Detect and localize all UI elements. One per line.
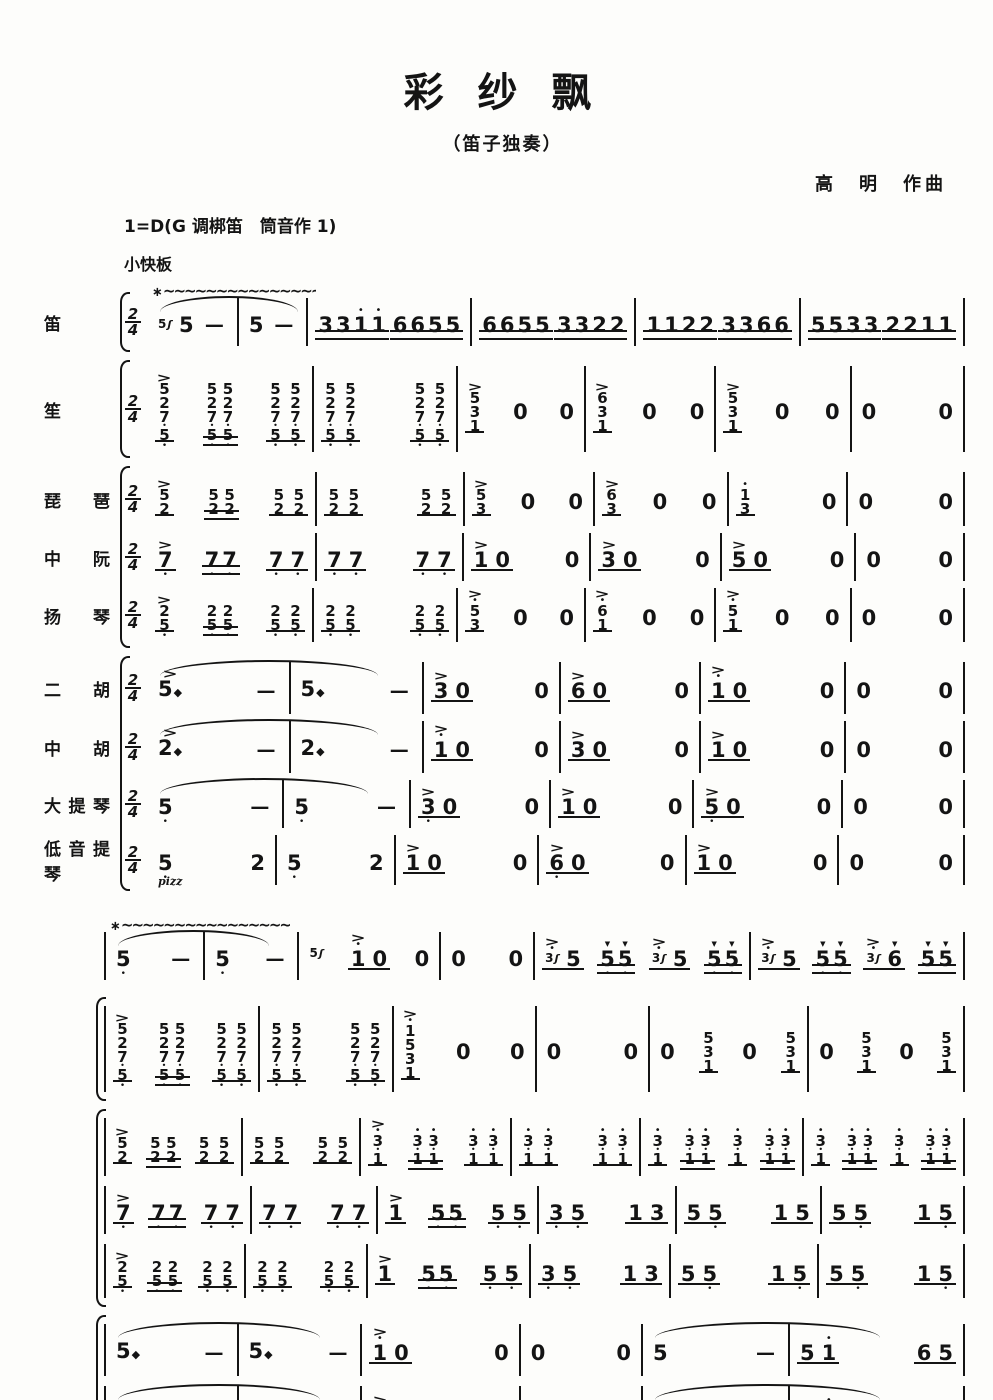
beat-group: >531 xyxy=(466,375,483,443)
note: •3•1 xyxy=(411,1118,424,1176)
beat-group: 0 xyxy=(532,664,551,712)
measure-strip: >527•5•527•5•527•5•527•5•527•5•527•5•527… xyxy=(104,1006,965,1092)
beat-group: 0 xyxy=(818,723,837,771)
note: >1 xyxy=(378,1247,393,1295)
octave-dot-below: • xyxy=(797,1285,802,1295)
beat-group: >7• xyxy=(156,533,175,581)
measure: 00 xyxy=(537,1006,650,1092)
beat-group: 25•25• xyxy=(321,1244,358,1298)
note: 0 xyxy=(531,1326,546,1374)
beat-group: 25•25• xyxy=(267,588,304,642)
measure: 00 xyxy=(856,533,965,581)
octave-dot-below: • xyxy=(225,1288,230,1298)
instrument-row: 大提琴245•—5•—>3•00>100>5•0000 xyxy=(40,780,965,828)
note: 5 xyxy=(653,1326,668,1374)
note: 527•5• xyxy=(349,1006,362,1092)
note: 25• xyxy=(201,1244,214,1298)
octave-dot-below: • xyxy=(546,1285,551,1295)
beat-group: 0 xyxy=(936,723,955,771)
note: 2 xyxy=(610,298,625,346)
octave-dot-below: • xyxy=(426,1285,431,1295)
note: 0 xyxy=(674,723,689,771)
note: •1 xyxy=(822,1326,837,1374)
measure: •130 xyxy=(729,472,849,526)
measure: 527•5•527•5•527•5•527•5• xyxy=(260,1006,394,1092)
octave-dot-below: • xyxy=(729,970,734,980)
dash-extension: — xyxy=(752,1326,778,1374)
measure: >6300 xyxy=(595,472,729,526)
octave-dot-below: • xyxy=(120,1288,125,1298)
measure: >53100 xyxy=(716,366,851,452)
octave-dot-below: • xyxy=(442,571,447,581)
label-spacer xyxy=(40,932,104,980)
beat-group: 0 xyxy=(511,836,530,884)
note: ▼6 xyxy=(887,932,902,980)
note: 0 xyxy=(494,1388,509,1400)
note: 3• xyxy=(549,1186,564,1234)
measure: >100 xyxy=(701,721,846,773)
instrument-row: 低音提琴245•pizz25•2>100>6•00>10000 xyxy=(40,835,965,885)
score-body: 笛24∗~~~~~~~~~~~~~~~~~~~~~~~~~~~~~~~~~~~~… xyxy=(40,289,965,1400)
octave-dot-below: • xyxy=(943,1224,948,1234)
grace-note: 5ʃ xyxy=(158,302,172,340)
note: 3 xyxy=(846,298,861,346)
beat-group: •3•1 xyxy=(812,1118,829,1176)
note: 0 xyxy=(899,1025,914,1073)
diamond-tremolo-icon: ◆ xyxy=(316,745,324,758)
beat-group: 0 xyxy=(672,723,691,771)
note: 5• xyxy=(287,836,302,884)
octave-dot-below: • xyxy=(346,1288,351,1298)
note: 5 xyxy=(938,1326,953,1374)
note: 531 xyxy=(784,1015,797,1083)
beat-group: •3•1•3•1 xyxy=(843,1118,876,1176)
dash-extension: — xyxy=(246,780,272,828)
beat-group: 531 xyxy=(858,1015,875,1083)
accent-icon: > xyxy=(433,725,448,733)
note: 0 xyxy=(513,836,528,884)
note: 0 xyxy=(623,1025,638,1073)
note: 0 xyxy=(559,591,574,639)
accent-icon: > xyxy=(549,844,564,852)
octave-dot-below: • xyxy=(435,1224,440,1234)
measure: 25•25•25•25• xyxy=(246,1244,368,1298)
measure: >2◆— xyxy=(148,721,291,773)
measure: >15•5•5•5• xyxy=(368,1244,531,1298)
note: >52 xyxy=(116,1120,129,1174)
beat-group: 527•5•527•5• xyxy=(213,1006,250,1092)
beat-group: 0 xyxy=(823,385,842,433)
accent-icon: > xyxy=(545,938,560,946)
beat-group: >2◆ xyxy=(156,721,184,773)
accent-icon: > xyxy=(725,590,740,598)
note: >•53 xyxy=(468,588,481,642)
note: 5 xyxy=(653,1388,668,1400)
note: 52 xyxy=(420,472,433,526)
measure: 7•7•7•7• xyxy=(317,533,464,581)
measure: >600 xyxy=(561,662,701,714)
beat-group: >10 xyxy=(695,836,735,884)
grace-note: >•3ʃ xyxy=(761,936,775,974)
beat-group: 0 xyxy=(545,1025,564,1073)
instrument-row: 二 胡24>5◆—5◆—>300>600>•10000 xyxy=(40,662,965,714)
beat-group: 7•7• xyxy=(149,1186,185,1234)
label-spacer xyxy=(40,1244,104,1298)
beat-group: 7•7• xyxy=(414,533,454,581)
measure-strip: 2◆—2◆—>500005—5•165 xyxy=(104,1386,965,1400)
octave-dot-below: • xyxy=(293,632,298,642)
beat-group: 0 xyxy=(936,533,955,581)
note: >•3•1 xyxy=(371,1118,384,1176)
time-signature: 24 xyxy=(118,484,148,514)
accent-icon: > xyxy=(571,731,586,739)
measure: 5•165 xyxy=(790,1324,965,1376)
instrument-group-brace: 二 胡24>5◆—5◆—>300>600>•10000中 胡24>2◆—2◆—>… xyxy=(40,653,965,894)
beat-group: 0 xyxy=(936,591,955,639)
beat-group: 5252 xyxy=(205,472,238,526)
measure: >5•00 xyxy=(694,780,843,828)
beat-group: •3•1 xyxy=(649,1118,666,1176)
instrument-group-brace: 5◆—5◆—>•100005—5•1652◆—2◆—>500005—5•1657… xyxy=(40,1312,965,1400)
beat-group: 0 xyxy=(557,385,576,433)
beat-group: 7•7• xyxy=(203,533,239,581)
beat-group: 15• xyxy=(915,1247,955,1295)
measure: 00 xyxy=(441,932,535,980)
note: >6 xyxy=(571,664,586,712)
beat-group: 0 xyxy=(897,1025,916,1073)
measure-strip: 5•—5•—>3•00>100>5•0000 xyxy=(148,780,965,828)
beat-group: •3•1•3•1 xyxy=(520,1118,557,1176)
beat-group: >527•5• xyxy=(114,1006,131,1092)
note: 52 xyxy=(347,472,360,526)
beat-group: 0 xyxy=(566,475,585,523)
octave-dot-below: • xyxy=(225,442,230,452)
note: 531 xyxy=(860,1015,873,1083)
note: >7• xyxy=(116,1186,131,1234)
note: 25• xyxy=(344,588,357,642)
measure-strip: >527•5•527•5•527•5•527•5•527•5•527•5•527… xyxy=(148,366,965,452)
beat-group: 527•5•527•5• xyxy=(267,366,304,452)
instrument-row: 扬 琴24>25•25•25•25•25•25•25•25•25•>•5300>… xyxy=(40,588,965,642)
note: 3 xyxy=(650,1186,665,1234)
beat-group: 0 xyxy=(413,932,432,980)
note: 2 xyxy=(699,298,714,346)
beat-group: >•10 xyxy=(349,932,389,980)
note: 5• xyxy=(938,1247,953,1295)
beat-group: 25•25• xyxy=(204,588,237,642)
octave-dot-below: • xyxy=(162,442,167,452)
tempo-marking: 小快板 xyxy=(124,251,965,275)
note: 5• xyxy=(294,780,309,828)
beat-group: >25• xyxy=(156,588,173,642)
beat-group: 0 xyxy=(508,1025,527,1073)
octave-dot-below: • xyxy=(173,1224,178,1234)
dash-extension: — xyxy=(201,298,227,346)
beat-group: — xyxy=(371,780,401,828)
octave-dot-below: • xyxy=(417,632,422,642)
note: 7• xyxy=(330,1186,345,1234)
measure: >6•00 xyxy=(539,835,686,885)
measure-strip: ∗~~~~~~~~~~~~~~~~~~~~~~~~~~~~~~~~~~~~~~~… xyxy=(148,298,965,346)
instrument-row: 5◆—5◆—>•100005—5•165 xyxy=(40,1324,965,1376)
note: >25• xyxy=(158,588,171,642)
note: 0 xyxy=(513,385,528,433)
beat-group: 0 xyxy=(854,664,873,712)
grace-note: 5ʃ xyxy=(309,931,323,969)
note: 7• xyxy=(225,1186,240,1234)
measure: 2◆— xyxy=(239,1386,363,1400)
measure: 00 xyxy=(846,721,965,773)
beat-group: 25•25• xyxy=(411,588,448,642)
measure: 00 xyxy=(839,835,965,885)
accent-icon: > xyxy=(163,670,178,678)
beat-group: •3•1 xyxy=(891,1118,908,1176)
note: 527•5• xyxy=(289,366,302,452)
beat-group: 527•5•527•5• xyxy=(268,1006,305,1092)
accent-icon: > xyxy=(115,1252,130,1260)
instrument-group-brace: 笙24>527•5•527•5•527•5•527•5•527•5•527•5•… xyxy=(40,357,965,461)
measure: >527•5•527•5•527•5•527•5•527•5• xyxy=(148,366,314,452)
page-title: 彩 纱 飘 xyxy=(40,60,965,118)
composer-credit: 高 明 作曲 xyxy=(40,170,965,196)
beat-group: 0 xyxy=(688,385,707,433)
octave-dot-below: • xyxy=(154,1288,159,1298)
beat-group: >30 xyxy=(599,533,639,581)
instrument-row: 中 胡24>2◆—2◆—>•100>300>10000 xyxy=(40,721,965,773)
measure: 5•pizz2 xyxy=(148,835,277,885)
note: •3•1 xyxy=(940,1118,953,1176)
beat-group: 0 xyxy=(529,1326,548,1374)
measure: >100 xyxy=(551,780,694,828)
note: ▼5• xyxy=(600,932,615,980)
note: 527•5• xyxy=(222,366,235,452)
note: •3•1 xyxy=(893,1118,906,1176)
note: 527•5• xyxy=(344,366,357,452)
note: 0 xyxy=(775,591,790,639)
octave-dot-below: • xyxy=(230,1224,235,1234)
measure: 3•5•13 xyxy=(539,1186,677,1234)
note: 0 xyxy=(690,591,705,639)
measure: 5•— xyxy=(284,780,411,828)
beat-group: 0 xyxy=(828,533,847,581)
note: 52 xyxy=(327,472,340,526)
note: 0 xyxy=(660,1025,675,1073)
measure: 5•— xyxy=(205,932,299,980)
note: 5• xyxy=(439,1247,454,1295)
instrument-row: >7•7•7•7•7•7•7•7•7•>15•5•5•5•3•5•1355•15… xyxy=(40,1186,965,1234)
measure: 5— xyxy=(643,1324,790,1376)
measure-strip: >7•7•7•7•7•7•7•7•7•>100>300>50000 xyxy=(148,533,965,581)
note: •3•1 xyxy=(467,1118,480,1176)
beat-group: 0 xyxy=(519,475,538,523)
note: 7• xyxy=(269,533,284,581)
beat-group: ▼5•▼5• xyxy=(598,932,634,980)
beat-group: 5ʃ5 xyxy=(156,298,196,346)
beat-group: 2211 xyxy=(883,298,955,346)
subtitle: （笛子独奏） xyxy=(40,130,965,156)
system-2: ∗~~~~~~~~~~~~~~~~~~~~~~~~~~~~~~~~~~~~~~~… xyxy=(40,920,965,1400)
note: 0 xyxy=(726,780,741,828)
accent-icon: > xyxy=(866,938,881,946)
note: 0 xyxy=(856,723,871,771)
note: >•51 xyxy=(726,588,739,642)
grace-curl-icon: ʃ xyxy=(771,953,776,964)
octave-dot-below: • xyxy=(161,1082,166,1092)
note: •3•1 xyxy=(861,1118,874,1176)
note: 0 xyxy=(674,664,689,712)
measure: >500 xyxy=(362,1386,520,1400)
octave-dot-below: • xyxy=(444,1285,449,1295)
note: 0 xyxy=(813,836,828,884)
beat-group: •3•1•3•1 xyxy=(681,1118,714,1176)
beat-group: — xyxy=(259,932,289,980)
beat-group: 5252 xyxy=(270,472,307,526)
note: 2 xyxy=(592,298,607,346)
instrument-row: 琵 琶24>525252525252525252>5300>6300•13000 xyxy=(40,472,965,526)
beat-group: 5•1 xyxy=(798,1388,838,1400)
accent-icon: > xyxy=(388,1194,403,1202)
note: >1 xyxy=(697,836,712,884)
note: 0 xyxy=(733,664,748,712)
beat-group: 0 xyxy=(936,780,955,828)
octave-dot-below: • xyxy=(121,970,126,980)
instrument-group-brace: 琵 琶24>525252525252525252>5300>6300•13000… xyxy=(40,463,965,651)
beat-group: •3•1•3•1 xyxy=(465,1118,502,1176)
octave-dot-below: • xyxy=(299,818,304,828)
note: 0 xyxy=(938,664,953,712)
note: 0 xyxy=(534,723,549,771)
note: 0 xyxy=(938,533,953,581)
instrument-row: >527•5•527•5•527•5•527•5•527•5•527•5•527… xyxy=(40,1006,965,1092)
note: •1 xyxy=(354,298,369,346)
octave-dot-below: • xyxy=(567,1285,572,1295)
beat-group: >10 xyxy=(559,780,599,828)
note: 5 xyxy=(800,1388,815,1400)
note: 0 xyxy=(592,723,607,771)
note: 527•5• xyxy=(269,366,282,452)
dash-extension: — xyxy=(253,664,279,712)
octave-dot-below: • xyxy=(487,1285,492,1295)
note: 0 xyxy=(616,1326,631,1374)
beat-group: 0 xyxy=(658,1025,677,1073)
beat-group: 0 xyxy=(936,836,955,884)
beat-group: >50 xyxy=(370,1388,410,1400)
note: 0 xyxy=(443,780,458,828)
measure: >100 xyxy=(687,835,840,885)
time-signature: 24 xyxy=(118,845,148,875)
octave-dot-below: • xyxy=(294,1082,299,1092)
instrument-label: 笙 xyxy=(40,397,118,422)
beat-group: >52 xyxy=(114,1120,131,1174)
note: 527•5• xyxy=(369,1006,382,1092)
note: •3•1 xyxy=(763,1118,776,1176)
diamond-tremolo-icon: ◆ xyxy=(316,686,324,699)
note: 5 xyxy=(782,932,797,980)
note: 527•5• xyxy=(235,1006,248,1092)
measure: 55•15• xyxy=(822,1186,965,1234)
note: 7• xyxy=(327,533,342,581)
beat-group: 0 xyxy=(823,591,842,639)
note: >5 xyxy=(732,533,747,581)
beat-group: •3•1•3•1 xyxy=(409,1118,442,1176)
measure: 25•25•25•25• xyxy=(314,588,458,642)
note: ▼5• xyxy=(815,932,830,980)
instrument-row: 中 阮24>7•7•7•7•7•7•7•7•7•>100>300>50000 xyxy=(40,533,965,581)
beat-group: 0 xyxy=(693,533,712,581)
note: 0 xyxy=(938,780,953,828)
beat-group: >52 xyxy=(156,472,173,526)
dash-extension: — xyxy=(752,1388,778,1400)
octave-dot-below: • xyxy=(420,571,425,581)
note: •3•1 xyxy=(683,1118,696,1176)
note: 0 xyxy=(494,1326,509,1374)
note: 0 xyxy=(616,1388,631,1400)
beat-group: 0 xyxy=(507,932,526,980)
beat-group: — xyxy=(384,723,414,771)
note: ▼5• xyxy=(618,932,633,980)
measure: ∗~~~~~~~~~~~~~~~~~~~~~~~~~~~~~~~~~~~~~~~… xyxy=(104,932,205,980)
measure: >100 xyxy=(396,835,540,885)
beat-group: 2 xyxy=(248,836,267,884)
measure: 11223366 xyxy=(636,298,800,346)
beat-group: 15• xyxy=(915,1186,955,1234)
note: •1 xyxy=(822,1388,837,1400)
note: 3 xyxy=(864,298,879,346)
beat-group: 0 xyxy=(818,664,837,712)
note: 7• xyxy=(416,533,431,581)
beat-group: 531 xyxy=(938,1015,955,1083)
measure: 5◆— xyxy=(239,1324,363,1376)
beat-group: 531 xyxy=(782,1015,799,1083)
octave-dot-below: • xyxy=(163,571,168,581)
beat-group: >1 xyxy=(376,1247,395,1295)
measure-strip: ∗~~~~~~~~~~~~~~~~~~~~~~~~~~~~~~~~~~~~~~~… xyxy=(104,932,965,980)
beat-group: •3•1 xyxy=(729,1118,746,1176)
note: >25• xyxy=(116,1244,129,1298)
octave-dot-below: • xyxy=(260,1288,265,1298)
note: >2◆ xyxy=(158,721,182,773)
beat-group: 5• xyxy=(213,932,232,980)
label-spacer xyxy=(40,1118,104,1176)
beat-group: >•3ʃ5 xyxy=(759,932,799,980)
beat-group: 0 xyxy=(847,836,866,884)
beat-group: >•3ʃ▼6 xyxy=(864,932,904,980)
dash-extension: — xyxy=(201,1388,227,1400)
note: 527•5• xyxy=(433,366,446,452)
beat-group: 527•5•527•5• xyxy=(156,1006,189,1092)
beat-group: >10 xyxy=(709,723,749,771)
accent-icon: > xyxy=(595,590,610,598)
grace-curl-icon: ʃ xyxy=(661,953,666,964)
note: 0 xyxy=(653,475,668,523)
beat-group: 5• xyxy=(156,780,175,828)
beat-group: >•53 xyxy=(466,588,483,642)
beat-group: 5 xyxy=(651,1388,670,1400)
note: 0 xyxy=(521,475,536,523)
note: >•1531 xyxy=(404,1008,417,1090)
note: 0 xyxy=(510,1025,525,1073)
instrument-group-brace: >527•5•527•5•527•5•527•5•527•5•527•5•527… xyxy=(40,994,965,1104)
beat-group: >•10 xyxy=(709,664,749,712)
note: 7• xyxy=(169,1186,184,1234)
measure: >•100 xyxy=(362,1324,520,1376)
note: >3 xyxy=(601,533,616,581)
beat-group: 0 xyxy=(688,591,707,639)
accent-icon: > xyxy=(474,541,489,549)
note: 0 xyxy=(373,932,388,980)
beat-group: >•51 xyxy=(724,588,741,642)
accent-icon: > xyxy=(604,480,619,488)
